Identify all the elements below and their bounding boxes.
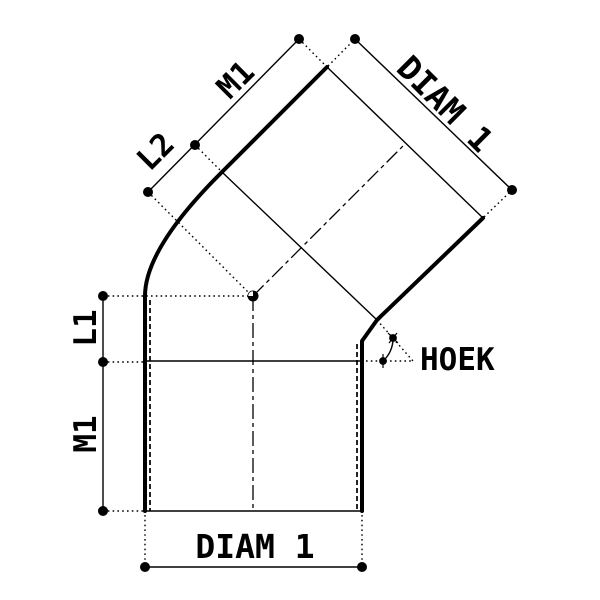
marker-dot: [294, 34, 304, 44]
marker-dot: [190, 140, 200, 150]
ext-diam1-top-right: [484, 191, 511, 217]
ext-diam1-top-left: [328, 40, 354, 66]
marker-dot: [357, 562, 367, 572]
ext-m1-top-lower: [195, 145, 222, 172]
marker-dot: [143, 187, 153, 197]
marker-dot: [98, 506, 108, 516]
pipe-left-wall: [145, 67, 327, 511]
marker-dot: [98, 357, 108, 367]
drawing-canvas: M1 L2 DIAM 1 L1 M1 DIAM 1 HOEK: [0, 0, 600, 600]
center-point-marker: [248, 291, 259, 302]
marker-dot: [350, 34, 360, 44]
marker-dot: [98, 291, 108, 301]
center-dot-notch: [248, 291, 253, 296]
pipe-outline: [145, 67, 483, 511]
label-l1: L1: [68, 309, 104, 346]
elbow-technical-drawing: M1 L2 DIAM 1 L1 M1 DIAM 1 HOEK: [0, 0, 600, 600]
pipe-thin-lines: [145, 67, 483, 511]
label-diam1-bottom: DIAM 1: [195, 527, 314, 566]
dimension-labels: M1 L2 DIAM 1 L1 M1 DIAM 1 HOEK: [68, 48, 501, 566]
label-l2: L2: [130, 126, 182, 178]
marker-dot: [507, 185, 517, 195]
label-hoek: HOEK: [420, 342, 495, 378]
label-m1-left: M1: [68, 415, 104, 452]
centerlines: [253, 145, 404, 512]
ext-m1-top-upper: [299, 39, 326, 66]
label-m1-top: M1: [210, 54, 262, 106]
angle-arc-markers: [380, 333, 398, 368]
marker-dot: [140, 562, 150, 572]
